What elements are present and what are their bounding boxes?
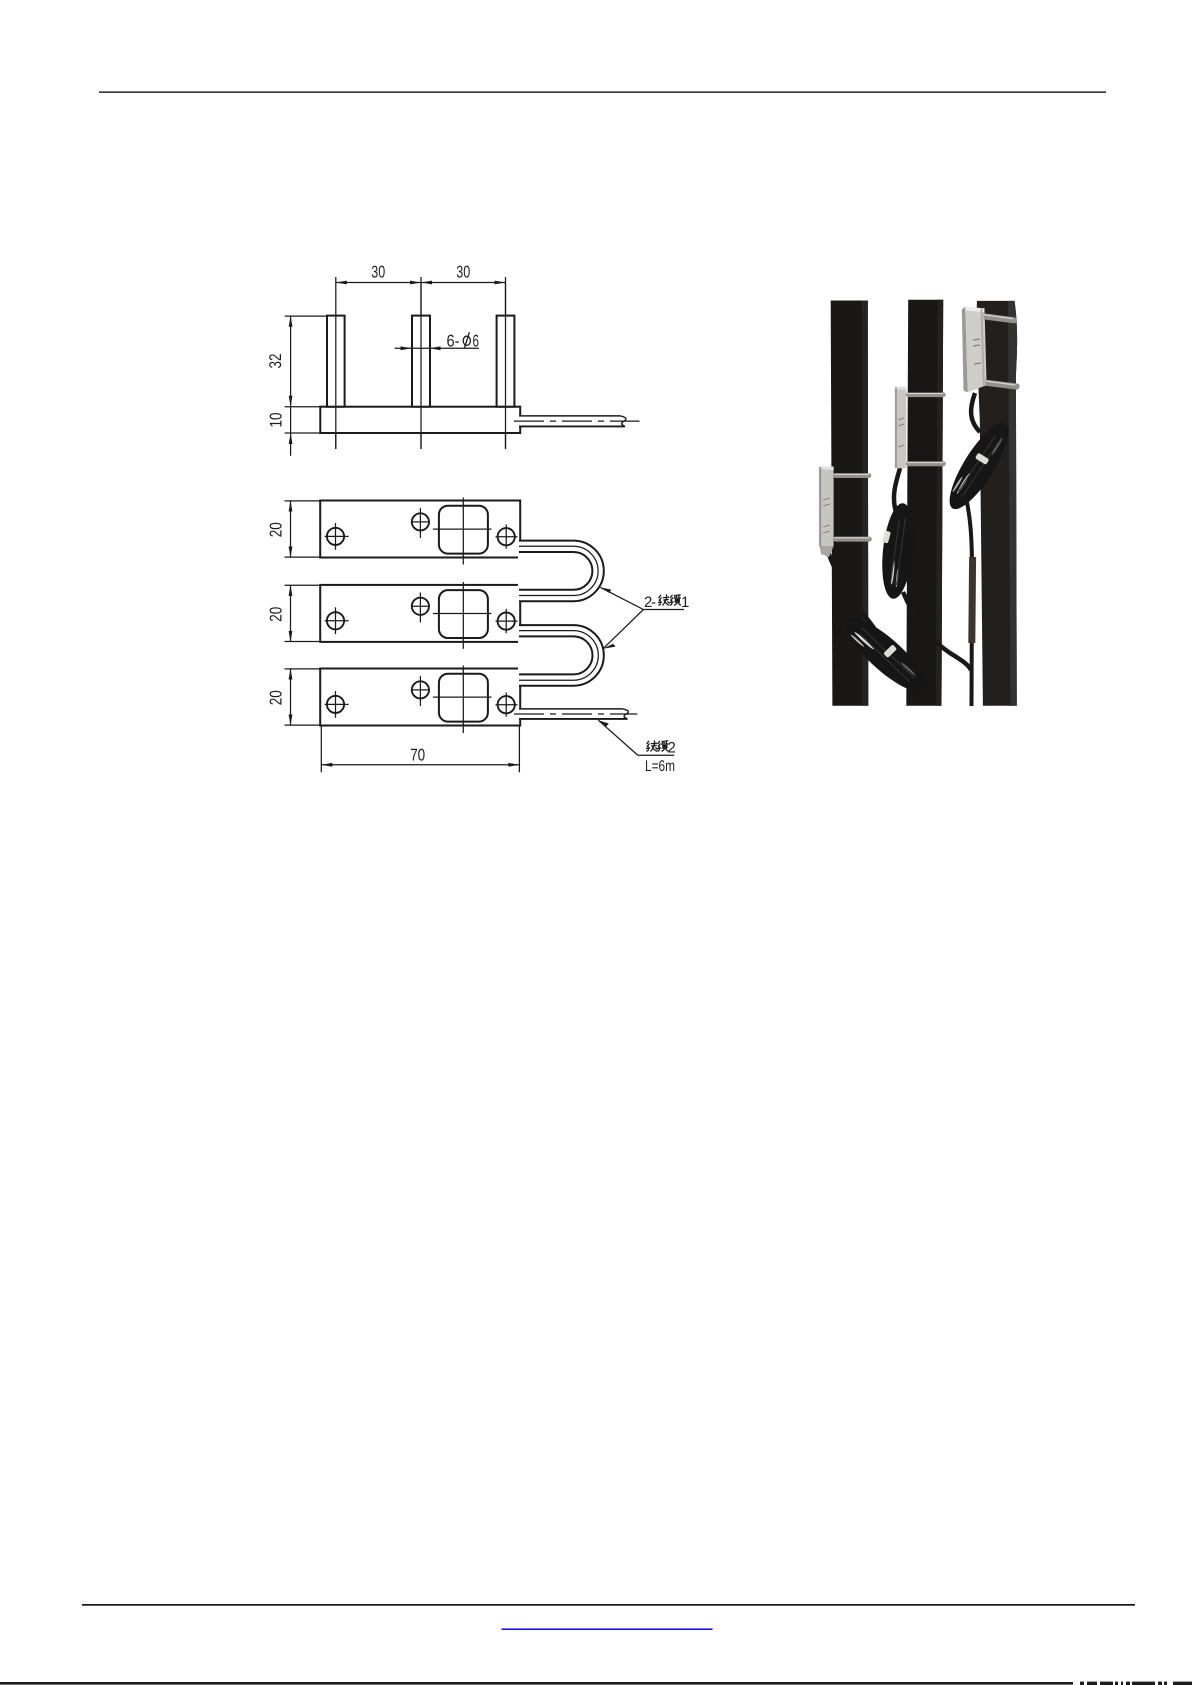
svg-text:6-: 6- (447, 331, 460, 350)
svg-text:2: 2 (668, 739, 676, 756)
svg-text:30: 30 (371, 263, 385, 282)
svg-text:2-: 2- (644, 594, 656, 611)
svg-text:20: 20 (267, 690, 286, 705)
svg-text:32: 32 (266, 354, 285, 369)
svg-text:20: 20 (267, 607, 286, 622)
svg-text:L=6m: L=6m (645, 758, 675, 775)
svg-text:6: 6 (473, 331, 480, 350)
svg-text:20: 20 (267, 522, 286, 537)
svg-text:1: 1 (681, 594, 689, 611)
svg-text:70: 70 (410, 746, 425, 765)
svg-text:10: 10 (267, 413, 286, 428)
svg-text:30: 30 (456, 263, 470, 282)
